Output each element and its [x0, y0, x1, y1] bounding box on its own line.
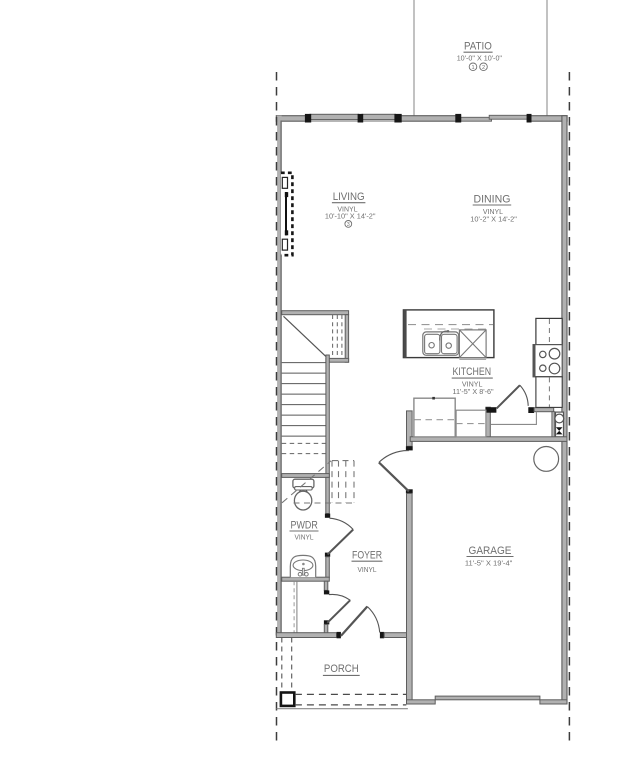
svg-text:10'-2" X 14'-2": 10'-2" X 14'-2"	[470, 214, 517, 223]
svg-text:11'-5" X 19'-4": 11'-5" X 19'-4"	[465, 559, 513, 568]
svg-text:LIVING: LIVING	[333, 191, 365, 203]
svg-text:PATIO: PATIO	[464, 41, 492, 53]
svg-text:KITCHEN: KITCHEN	[453, 366, 492, 378]
svg-text:VINYL: VINYL	[295, 532, 314, 541]
svg-text:1: 1	[471, 65, 474, 71]
svg-text:GARAGE: GARAGE	[469, 545, 512, 557]
svg-text:2: 2	[482, 65, 485, 71]
svg-text:11'-5" X 8'-6": 11'-5" X 8'-6"	[453, 387, 494, 396]
svg-text:3: 3	[347, 222, 350, 228]
svg-text:PWDR: PWDR	[291, 519, 318, 531]
svg-text:10'-0" X 10'-0": 10'-0" X 10'-0"	[457, 53, 503, 62]
svg-text:10'-10" X 14'-2": 10'-10" X 14'-2"	[325, 212, 376, 221]
svg-text:VINYL: VINYL	[358, 565, 377, 574]
svg-text:DINING: DINING	[474, 194, 511, 206]
svg-text:FOYER: FOYER	[352, 549, 382, 561]
svg-text:PORCH: PORCH	[324, 663, 359, 675]
